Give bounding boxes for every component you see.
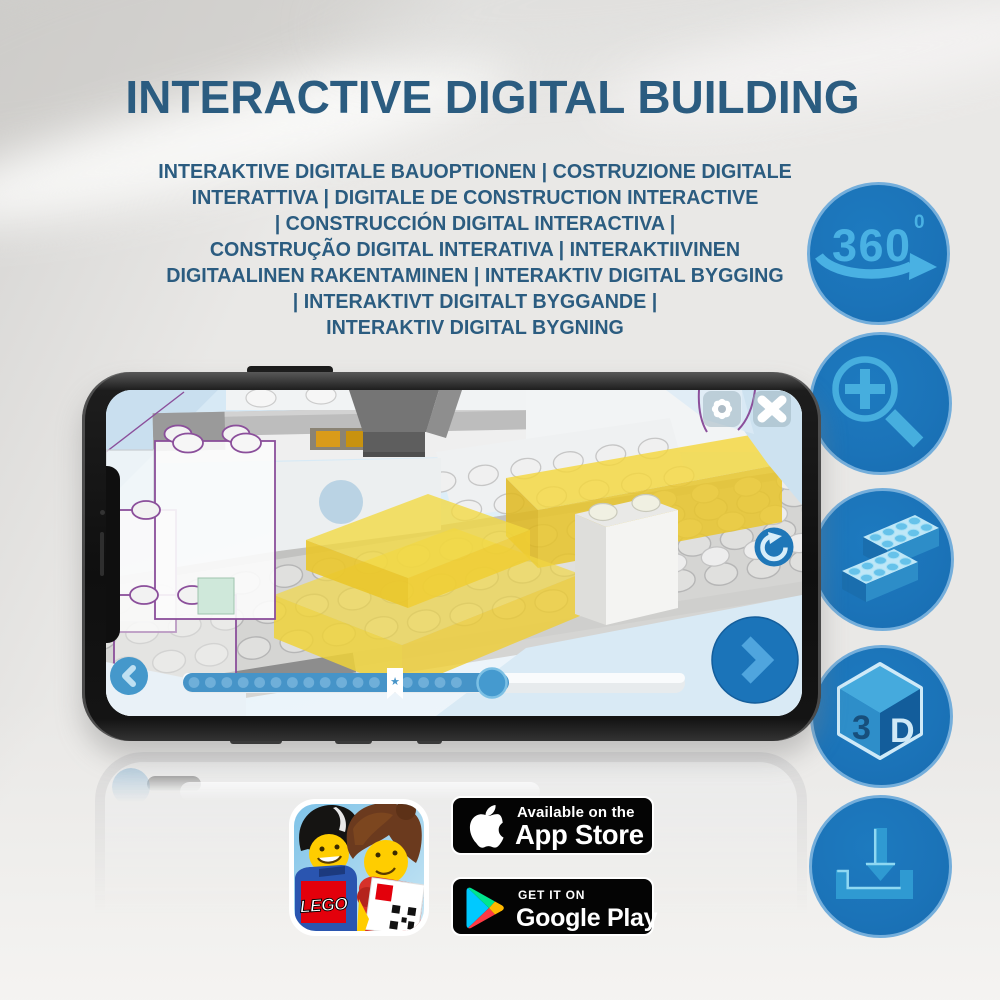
svg-text:D: D <box>890 712 915 750</box>
svg-text:360: 360 <box>832 220 912 271</box>
svg-text:0: 0 <box>914 212 925 233</box>
svg-text:LEGO: LEGO <box>299 893 349 916</box>
svg-text:★: ★ <box>390 676 400 688</box>
svg-text:3: 3 <box>852 709 871 747</box>
